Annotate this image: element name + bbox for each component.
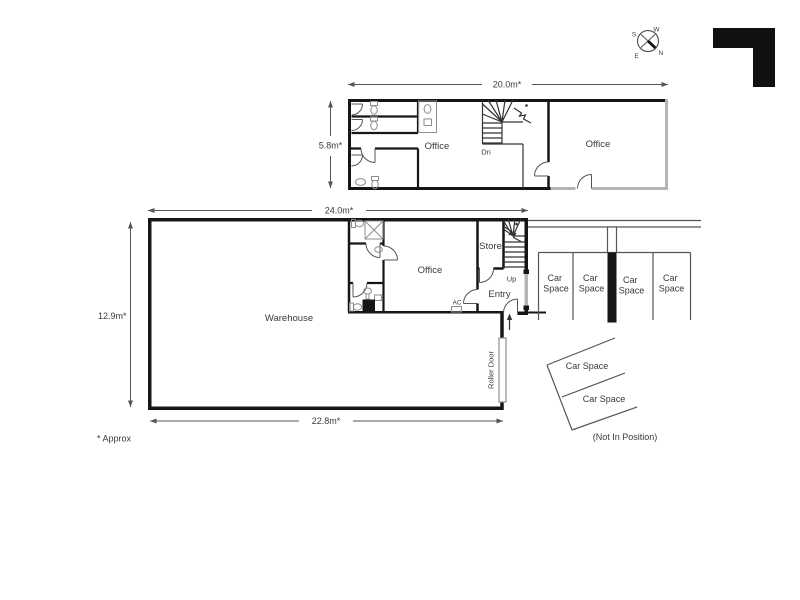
- svg-text:AC: AC: [452, 300, 461, 307]
- compass-south: S: [632, 32, 637, 39]
- svg-text:22.8m*: 22.8m*: [312, 416, 341, 426]
- angled-car-space-1: Car Space: [566, 361, 609, 371]
- ground-width-dimension: 24.0m*: [148, 206, 528, 216]
- store-label: Store: [479, 241, 502, 252]
- column: [363, 300, 376, 312]
- angled-car-space-2: Car Space: [583, 394, 626, 404]
- upper-floor-plan: Office Office Dn 20.0m* 5.8m*: [319, 80, 668, 191]
- ground-office-label: Office: [418, 265, 443, 276]
- upper-bathroom-fixtures: [356, 102, 432, 189]
- ground-height-dimension: 12.9m*: [98, 222, 131, 407]
- car-space-stall-2: Car Space: [579, 273, 605, 294]
- roller-door: Roller Door: [487, 338, 507, 402]
- ground-floor-plan: AC Roller Door Warehouse Office Store En…: [98, 206, 546, 427]
- upper-height-dimension: 5.8m*: [319, 101, 343, 188]
- upper-office-left-label: Office: [425, 141, 450, 152]
- warehouse-label: Warehouse: [265, 313, 313, 324]
- ground-bathroom-fixtures: [350, 220, 384, 312]
- roller-door-label: Roller Door: [487, 351, 496, 389]
- approx-footnote: * Approx: [97, 434, 132, 444]
- stairs-up-label: Up: [507, 275, 517, 284]
- fence-wall: [608, 253, 617, 323]
- ground-bottom-dimension: 22.8m*: [150, 416, 503, 426]
- entry-arrow-icon: [507, 314, 512, 331]
- upper-office-right-label: Office: [586, 139, 611, 150]
- compass-rose-icon: S W E N: [632, 27, 664, 61]
- svg-text:5.8m*: 5.8m*: [319, 141, 343, 151]
- angled-car-spaces: Car Space Car Space (Not In Position): [547, 338, 657, 442]
- ground-stairs: [504, 219, 525, 268]
- svg-text:12.9m*: 12.9m*: [98, 311, 127, 321]
- stairs-down-label: Dn: [481, 148, 491, 157]
- floor-plan-drawing: S W E N: [0, 0, 800, 600]
- compass-north: N: [659, 50, 664, 57]
- floor-plan-page: S W E N: [0, 0, 800, 600]
- entry-label: Entry: [488, 289, 510, 300]
- car-spaces: Car Space Car Space Car Space Car Space: [528, 221, 701, 323]
- upper-stairs: [483, 100, 532, 189]
- logo-mark: [713, 28, 775, 87]
- car-space-stall-4: Car Space: [659, 273, 685, 294]
- not-in-position-note: (Not In Position): [593, 432, 658, 442]
- compass-east: E: [634, 53, 639, 60]
- compass-west: W: [653, 27, 660, 34]
- upper-width-dimension: 20.0m*: [348, 80, 668, 90]
- car-space-stall-1: Car Space: [543, 273, 569, 294]
- ac-unit: AC: [452, 300, 462, 313]
- svg-text:20.0m*: 20.0m*: [493, 80, 522, 90]
- svg-text:24.0m*: 24.0m*: [325, 206, 354, 216]
- car-space-stall-3: Car Space: [619, 275, 645, 296]
